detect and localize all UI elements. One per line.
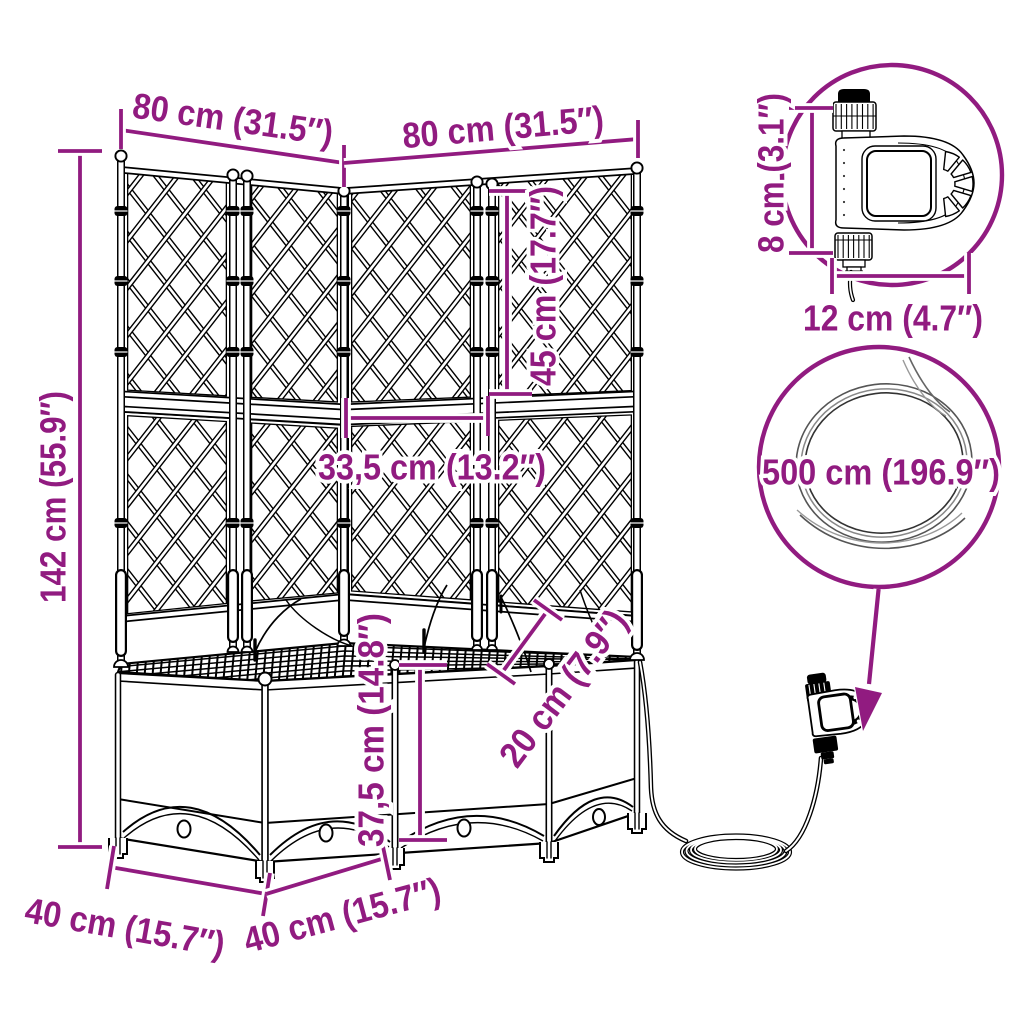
svg-text:45 cm (17.7″): 45 cm (17.7″)	[523, 186, 564, 386]
svg-text:33,5 cm (13.2″): 33,5 cm (13.2″)	[318, 447, 546, 488]
svg-text:37,5 cm (14.8″): 37,5 cm (14.8″)	[351, 613, 392, 847]
svg-text:12 cm (4.7″): 12 cm (4.7″)	[803, 298, 983, 339]
svg-text:8 cm (3.1″): 8 cm (3.1″)	[751, 93, 792, 253]
svg-text:142 cm (55.9″): 142 cm (55.9″)	[33, 391, 74, 603]
svg-text:500 cm (196.9″): 500 cm (196.9″)	[762, 452, 1000, 493]
